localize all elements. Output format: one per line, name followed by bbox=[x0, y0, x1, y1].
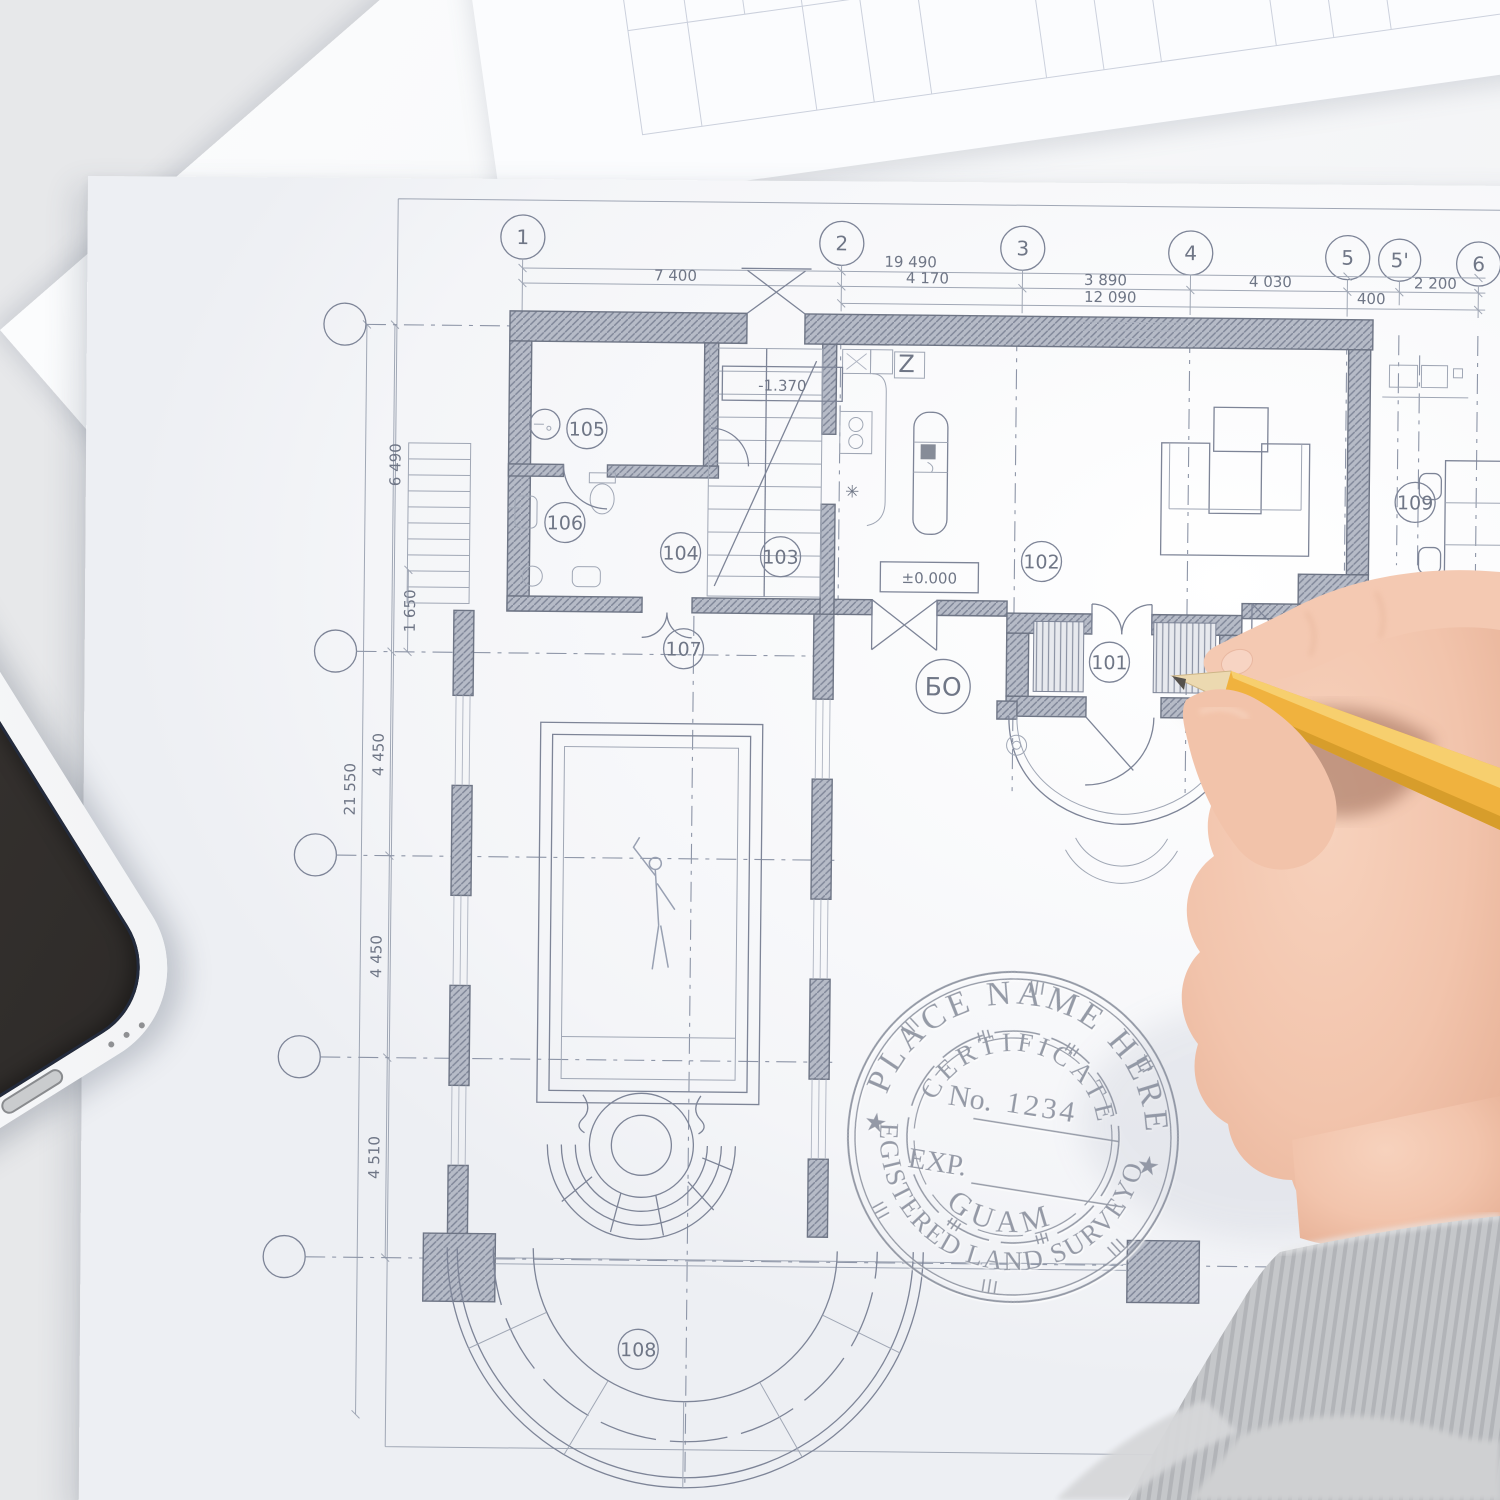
hand-with-pencil bbox=[0, 0, 1500, 1500]
photo-scene: 1 2 3 4 5 5' 6 19 490 7 400 bbox=[0, 0, 1500, 1500]
